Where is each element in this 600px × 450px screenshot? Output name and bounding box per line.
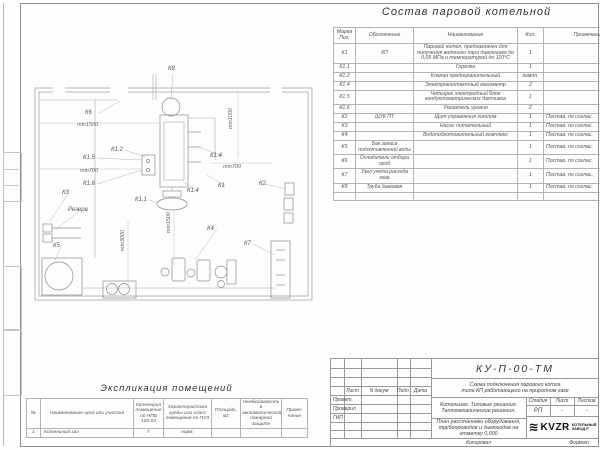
col-header-room-name: Наименование цеха или участка — [41, 399, 134, 429]
plan-label: К1.4 — [210, 153, 222, 159]
document-code: КУ-П-00-ТМ — [431, 359, 599, 378]
subtitle-line2: типа КП работающего на природном газе — [461, 388, 568, 394]
col-header-number: № — [27, 399, 41, 429]
table-row: К1.6Указатель уровня2 — [334, 104, 600, 113]
sheets-total: - — [574, 405, 599, 416]
composition-table: Марка Поз. Обозначение Наименование Кол.… — [333, 27, 600, 201]
plan-dimension: min1500 — [77, 122, 98, 128]
stamp-header-sheet: Лист — [344, 386, 361, 395]
explication-table: № Наименование цеха или участка Категори… — [26, 398, 308, 438]
col-header-environment: Характеристика среды или класс помещения… — [164, 399, 212, 429]
stamp-header-docnum: N докум — [361, 386, 397, 395]
water-treatment-symbol — [161, 258, 236, 288]
table-row: 1 Котельный зал Г норм. - — [27, 429, 308, 438]
table-row: К6Охладитель отбора проб1Постав. по согл… — [334, 155, 600, 169]
table-row: К4Водоподготовительный комплекс1Постав. … — [334, 131, 600, 140]
plan-dimension: min700 — [80, 168, 98, 174]
pipes — [40, 74, 275, 288]
table-row: К1.4Электроконтактный манометр2 — [334, 81, 600, 90]
level-sensor-block-symbol — [142, 155, 155, 175]
table-row — [334, 192, 600, 200]
col-header-mark: Марка Поз. — [334, 28, 356, 44]
stamp-header-date: Дата — [410, 386, 431, 395]
walls — [35, 88, 312, 300]
format-label: Формат — [559, 438, 599, 447]
col-header-area: Площадь, м2 — [212, 399, 241, 429]
table-row: К1КППаровой котел, предназначен для полу… — [334, 44, 600, 64]
margin-stamp-box — [3, 266, 22, 330]
table-row: К1.1Горелка1 — [334, 63, 600, 72]
plan-dimension: min700 — [223, 164, 241, 170]
table-row: К1.2Клапан предохранительныйкомпл. — [334, 72, 600, 81]
col-header-note: Примечание — [544, 28, 600, 44]
sheet-number: - — [550, 405, 574, 416]
stage-label: Стадия — [526, 397, 550, 405]
role-checked: Проверил — [331, 404, 363, 413]
sheet-label: Лист — [550, 397, 574, 405]
plan-dimension: min1500 — [166, 212, 172, 233]
plan-dimension: min3000 — [120, 230, 126, 251]
plan-label: К2 — [259, 181, 266, 187]
title-block: Лист N докум Подп. Дата Проект. Проверил… — [330, 358, 598, 446]
copied-by-label: Копировал — [431, 438, 526, 447]
margin-stamp-box — [3, 152, 22, 202]
plan-label: К3 — [62, 190, 69, 196]
plan-label: К1.5 — [83, 155, 95, 161]
plan-dimension: min1000 — [228, 108, 234, 129]
dimension-lines — [40, 92, 272, 288]
table-row: К8Труба дымовая1Постав. по соглас. — [334, 183, 600, 192]
logo-coil-icon: ≋ — [528, 422, 538, 432]
plan-label: К1.6 — [83, 181, 95, 187]
project-name: Котельная. Типовые решения. Тепломеханич… — [432, 398, 525, 418]
burner-symbol — [157, 191, 187, 210]
role-chief-engineer: ГИП — [331, 413, 363, 422]
stage-value: РП — [526, 405, 550, 416]
floor-plan: К8 К6 min1500 К1.2 К1.5 min700 К1.6 min1… — [25, 60, 330, 322]
floor-plan-drawing — [25, 60, 330, 322]
table-row: К5Бак запаса подготовленной воды1Постав.… — [334, 140, 600, 154]
plan-label: К1.4 — [187, 188, 199, 194]
logo-text: KVZR — [541, 422, 570, 433]
company-name-line2: ЗАВОД Р — [572, 427, 589, 431]
col-header-category: Категория помещения по НПБ 105-03 — [134, 399, 164, 429]
pump-group-symbol — [103, 281, 136, 298]
stamp-header-signature: Подп. — [397, 386, 410, 395]
col-header-name: Наименование — [414, 28, 518, 44]
table-row: К1.5Четырех электродный блок кондуктомет… — [334, 90, 600, 104]
margin-stamp-box — [3, 330, 22, 396]
plan-label: К4 — [207, 226, 214, 232]
plan-label: К1 — [218, 183, 225, 189]
table-row: К3Насос питательный1Постав. по соглас. — [334, 122, 600, 131]
plan-label: К1.1 — [135, 197, 147, 203]
gas-unit-symbol — [271, 241, 290, 298]
composition-title: Состав паровой котельной — [333, 6, 600, 18]
company-logo-cell: ≋ KVZR КОТЕЛЬНЫЙ ЗАВОД Р — [526, 416, 599, 438]
document-subtitle: Схема подключения парового котла типа КП… — [431, 378, 599, 397]
table-row: К2ЩУК ПТЩит управления котлом1Постав. по… — [334, 113, 600, 122]
table-row: К7Узел учета расхода газа1Постав. по сог… — [334, 169, 600, 183]
col-header-note: Приме- чание — [282, 399, 308, 429]
col-header-code: Обозначение — [356, 28, 414, 44]
plan-label: К7 — [244, 241, 251, 247]
plan-label: К5 — [53, 243, 60, 249]
company-name: КОТЕЛЬНЫЙ ЗАВОД Р — [572, 423, 597, 431]
col-header-fire-protection: Необходимость в автоматической пожарной … — [241, 399, 282, 429]
role-designed: Проект. — [331, 395, 363, 404]
boiler-symbol — [160, 98, 201, 187]
composition-table-section: Состав паровой котельной Марка Поз. Обоз… — [333, 6, 600, 201]
plan-label: К6 — [85, 110, 92, 116]
plan-label: К8 — [168, 66, 175, 72]
water-tank-symbol — [42, 258, 82, 295]
plan-label: Резерв — [68, 207, 88, 213]
drawing-sheet: К8 К6 min1500 К1.2 К1.5 min700 К1.6 min1… — [0, 0, 600, 450]
explication-section: Экспликация помещений № Наименование цех… — [26, 383, 307, 438]
plan-label: К1.2 — [111, 147, 123, 153]
company-logo: ≋ KVZR КОТЕЛЬНЫЙ ЗАВОД Р — [528, 422, 596, 433]
sheets-label: Листов — [574, 397, 599, 405]
sheet-name: План расстановки оборудования, трубопров… — [432, 418, 525, 438]
reserve-pump-symbol — [43, 224, 81, 242]
explication-title: Экспликация помещений — [26, 383, 307, 394]
col-header-qty: Кол. — [518, 28, 544, 44]
